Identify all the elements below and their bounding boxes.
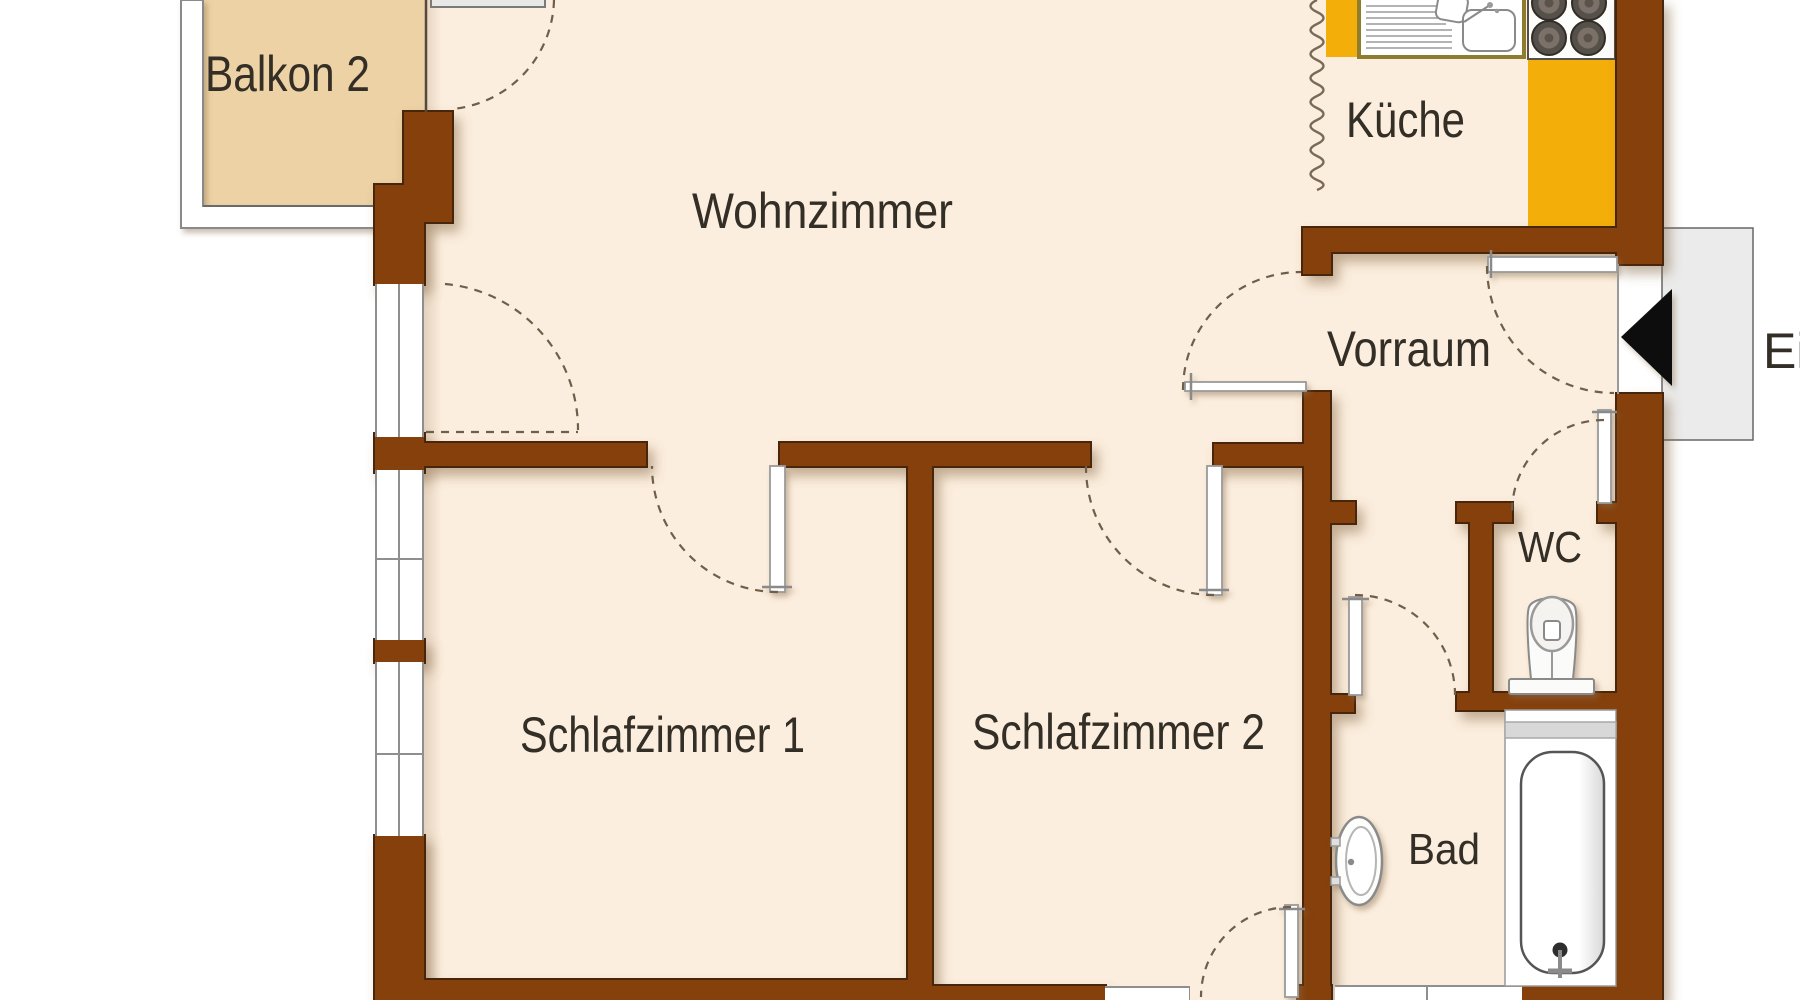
svg-text:Küche: Küche: [1346, 92, 1465, 148]
svg-text:Bad: Bad: [1408, 825, 1480, 874]
svg-text:Eingang: Eingang: [1763, 323, 1800, 379]
svg-text:Vorraum: Vorraum: [1327, 321, 1491, 377]
svg-text:Schlafzimmer 2: Schlafzimmer 2: [972, 704, 1265, 760]
svg-text:Wohnzimmer: Wohnzimmer: [692, 183, 953, 239]
svg-text:Balkon 2: Balkon 2: [205, 46, 370, 102]
svg-text:Schlafzimmer 1: Schlafzimmer 1: [520, 707, 805, 763]
svg-text:WC: WC: [1518, 523, 1582, 572]
